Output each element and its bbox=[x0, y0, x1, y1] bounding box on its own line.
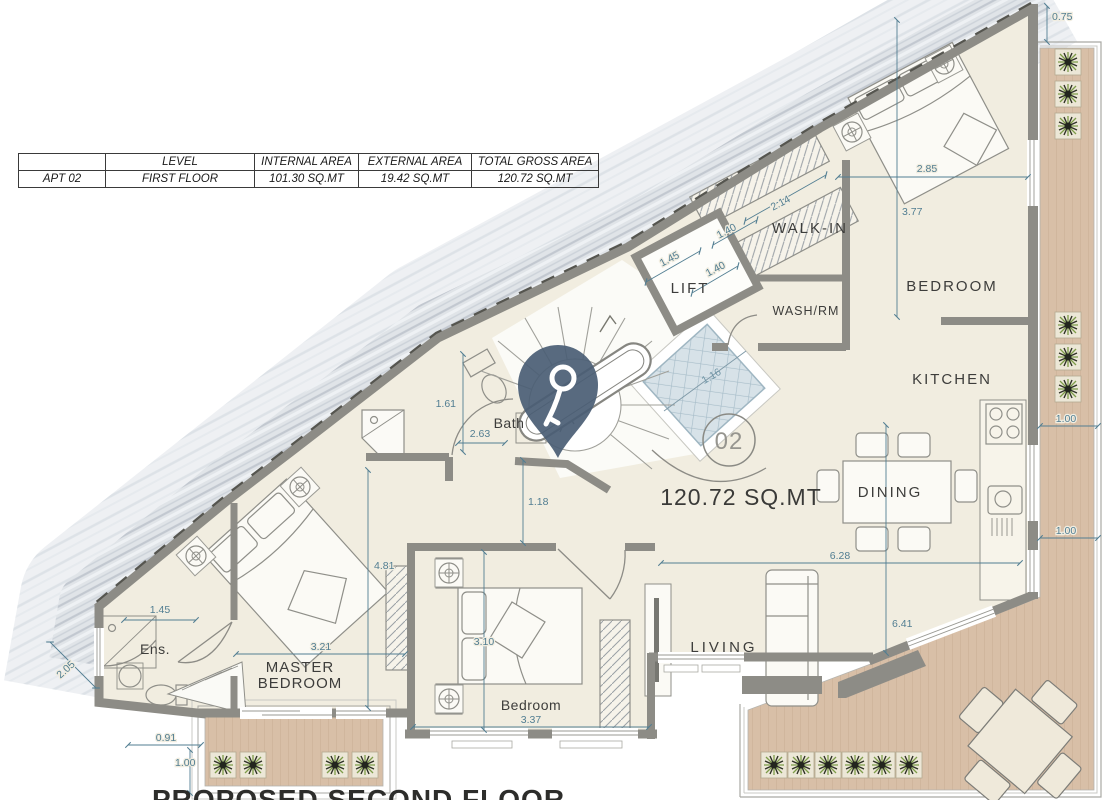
dim-top-right-gap: 0.75 bbox=[1052, 11, 1073, 23]
area-table-header-row: LEVEL INTERNAL AREA EXTERNAL AREA TOTAL … bbox=[19, 154, 599, 171]
room-label-bath: Bath bbox=[494, 415, 525, 431]
dim-bedroom-top-width: 2.85 bbox=[917, 163, 938, 175]
area-table-header-gross: TOTAL GROSS AREA bbox=[472, 154, 599, 171]
room-label-dining: DINING bbox=[858, 484, 923, 501]
dim-balcony-depth-left: 1.00 bbox=[175, 757, 196, 769]
area-table-gross-area: 120.72 SQ.MT bbox=[472, 171, 599, 188]
dim-living-height: 6.41 bbox=[892, 618, 913, 630]
area-table-external-area: 19.42 SQ.MT bbox=[359, 171, 472, 188]
room-label-bedroom-bottom: Bedroom bbox=[501, 697, 561, 713]
total-area-label: 120.72 SQ.MT bbox=[660, 484, 822, 510]
room-label-walk-in: WALK-IN bbox=[772, 220, 848, 237]
area-table-data-row: APT 02 FIRST FLOOR 101.30 SQ.MT 19.42 SQ… bbox=[19, 171, 599, 188]
floor-plan-drawing: 0.75 2.85 3.77 2.14 1.40 1.45 1.40 1.16 … bbox=[0, 0, 1106, 800]
apartment-number: 02 bbox=[715, 428, 744, 455]
area-table-header-level: LEVEL bbox=[106, 154, 255, 171]
room-label-wash-rm: WASH/RM bbox=[773, 304, 840, 318]
dim-bedroom-top-height: 3.77 bbox=[902, 206, 923, 218]
dim-master-width: 3.21 bbox=[311, 641, 332, 653]
room-label-bedroom-top: BEDROOM bbox=[906, 278, 998, 295]
room-label-living: LIVING bbox=[690, 639, 757, 656]
sheet-title: PROPOSED SECOND FLOOR bbox=[152, 784, 565, 800]
room-label-master-line1: MASTER bbox=[266, 659, 335, 676]
dim-bedroom-bottom-width: 3.10 bbox=[474, 636, 495, 648]
dim-bath-length: 2.63 bbox=[470, 428, 491, 440]
floor-plan-sheet: 0.75 2.85 3.77 2.14 1.40 1.45 1.40 1.16 … bbox=[0, 0, 1106, 800]
area-table-level: FIRST FLOOR bbox=[106, 171, 255, 188]
area-table-header-external: EXTERNAL AREA bbox=[359, 154, 472, 171]
area-table-header-blank bbox=[19, 154, 106, 171]
area-table-header-internal: INTERNAL AREA bbox=[255, 154, 359, 171]
dim-terrace-depth-bottom: 1.00 bbox=[1056, 525, 1077, 537]
dim-balcony-offset: 0.91 bbox=[156, 732, 177, 744]
area-table-internal-area: 101.30 SQ.MT bbox=[255, 171, 359, 188]
dim-ensuite-width: 1.45 bbox=[150, 604, 171, 616]
area-table: LEVEL INTERNAL AREA EXTERNAL AREA TOTAL … bbox=[18, 153, 599, 188]
dim-bedroom-bottom-length: 3.37 bbox=[521, 714, 542, 726]
room-label-kitchen: KITCHEN bbox=[912, 371, 992, 388]
room-label-master-line2: BEDROOM bbox=[258, 675, 343, 692]
dim-master-height: 4.81 bbox=[374, 560, 395, 572]
area-table-apt: APT 02 bbox=[19, 171, 106, 188]
dim-hall-width: 1.18 bbox=[528, 496, 549, 508]
dim-bath-width: 1.61 bbox=[436, 398, 457, 410]
room-label-lift: LIFT bbox=[671, 280, 710, 297]
dim-terrace-depth-top: 1.00 bbox=[1056, 413, 1077, 425]
room-label-ensuite: Ens. bbox=[140, 641, 170, 657]
dim-living-width: 6.28 bbox=[830, 550, 851, 562]
